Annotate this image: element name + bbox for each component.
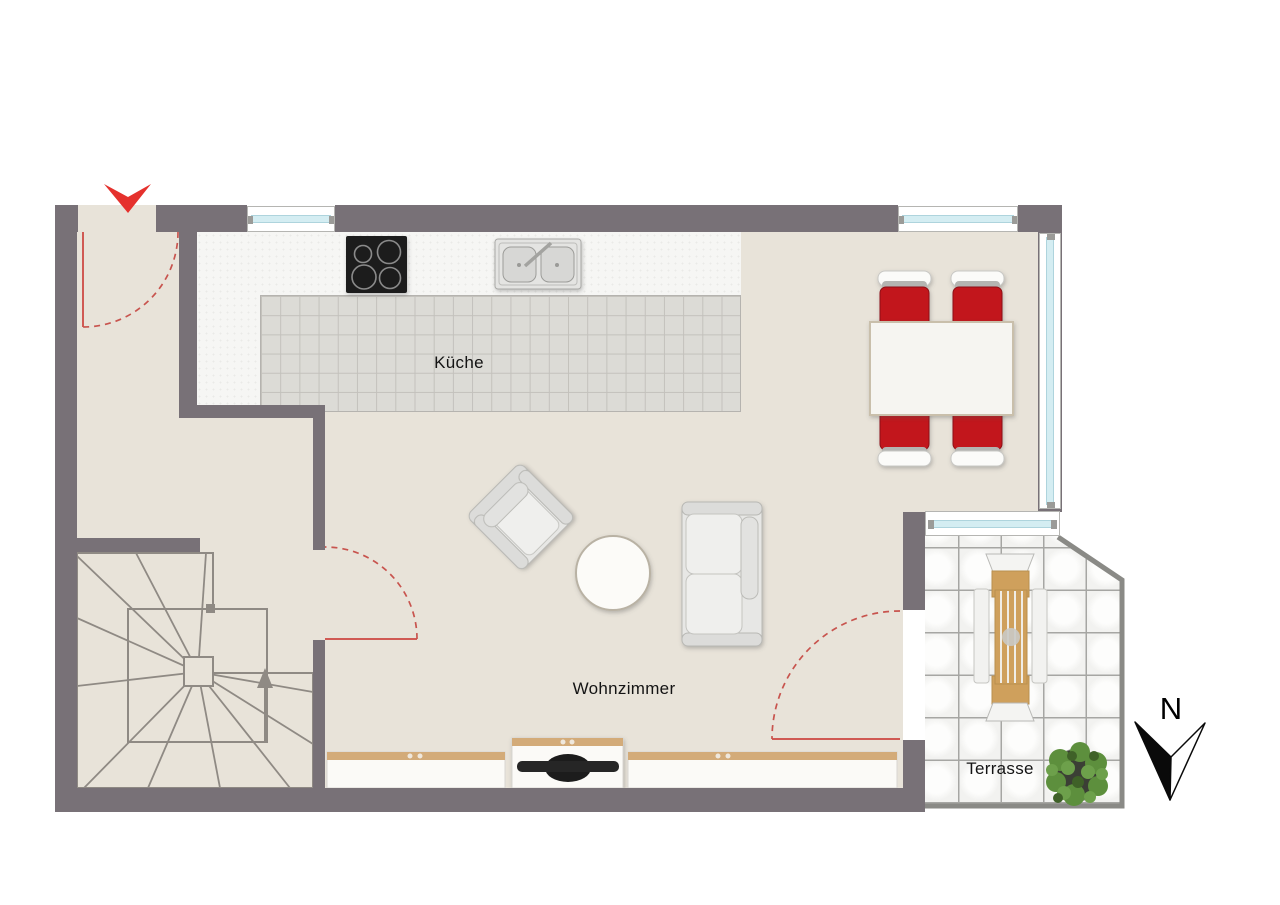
living-room-side-window <box>1039 233 1061 509</box>
entrance-recess-floor <box>78 205 156 233</box>
kitchen-counter-left-run <box>196 232 260 412</box>
main-floor-lower <box>77 512 903 788</box>
room-label-living-room: Wohnzimmer <box>573 679 676 699</box>
room-label-kitchen: Küche <box>434 353 484 373</box>
wall-top-c <box>335 205 898 232</box>
wall-bottom <box>55 788 925 812</box>
wall-top-b <box>156 205 247 232</box>
window-glass <box>251 215 331 223</box>
wall-kitchen-bottom <box>179 405 325 418</box>
wall-livingroom-terrace-upper <box>903 512 925 610</box>
wall-left <box>55 205 77 812</box>
wall-top-d <box>1018 205 1062 232</box>
north-arrow-icon <box>1135 722 1205 800</box>
window-glass <box>1046 237 1054 505</box>
north-label: N <box>1160 691 1182 727</box>
window-glass <box>902 215 1014 223</box>
dining-window <box>898 206 1018 232</box>
kitchen-window <box>247 206 335 232</box>
wall-hall-living-upper <box>313 418 325 550</box>
window-glass <box>929 520 1056 528</box>
floor-plan: Küche Wohnzimmer Terrasse N <box>0 0 1280 905</box>
wall-kitchen-left <box>179 232 197 418</box>
wall-hall-living-lower <box>313 640 325 788</box>
wall-livingroom-terrace-lower <box>903 740 925 812</box>
wall-stair-stub <box>77 538 200 552</box>
kitchen-counter-top-run <box>196 232 741 295</box>
room-label-terrace: Terrasse <box>966 759 1034 779</box>
kitchen-tiled-floor <box>260 295 741 412</box>
terrace-window <box>925 511 1060 536</box>
